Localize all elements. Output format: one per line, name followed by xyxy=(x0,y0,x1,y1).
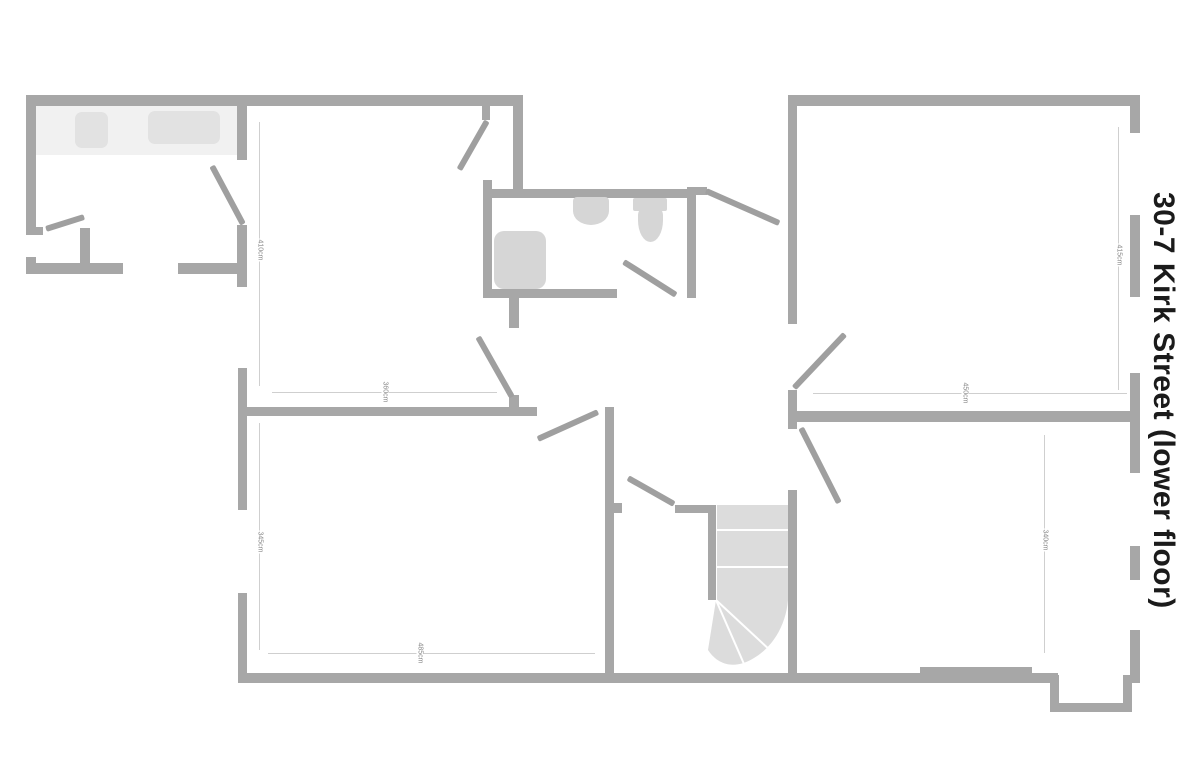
wall-bathroom-left xyxy=(483,180,492,298)
wall-right-seg1 xyxy=(1130,95,1140,133)
wall-tr-top xyxy=(790,95,1140,106)
wall-left-jamb xyxy=(26,227,43,235)
wall-tr-left-stub xyxy=(788,390,797,429)
dimension-label: 340cm xyxy=(1042,528,1049,551)
kitchen-appliance-left xyxy=(75,112,108,148)
door-swing-bathroom-inner xyxy=(622,259,678,297)
wall-right-seg2 xyxy=(1130,215,1140,297)
door-swing-bottom-left-room xyxy=(537,409,600,442)
door-swing-kitchen xyxy=(209,165,245,226)
wall-central-vertical xyxy=(513,98,523,197)
wall-top xyxy=(26,95,523,106)
wall-right-seg3 xyxy=(1130,373,1140,473)
wall-kitchen-right-lower xyxy=(237,225,247,287)
stair-tread-line xyxy=(717,566,788,568)
dimension-line xyxy=(268,653,595,654)
dimension-label: 345cm xyxy=(257,530,264,553)
dimension-line xyxy=(813,393,1127,394)
wall-br-top xyxy=(797,411,1140,422)
wall-bl-right xyxy=(605,407,614,673)
wall-kitchen-right-upper xyxy=(237,95,247,160)
dimension-label: 360cm xyxy=(382,380,389,403)
wall-doorway-jamb xyxy=(482,95,490,120)
wall-right-seg5 xyxy=(1130,630,1140,683)
wall-hall-below-bathroom xyxy=(509,297,519,328)
wall-mid-horizontal xyxy=(240,407,537,416)
wall-tr-left xyxy=(788,95,797,324)
wall-notch-bottom xyxy=(1050,703,1132,712)
sink xyxy=(573,197,609,225)
door-swing-top-right-room xyxy=(792,332,847,390)
door-swing-top-middle-room xyxy=(457,120,490,172)
dimension-label: 450cm xyxy=(962,381,969,404)
shower xyxy=(494,231,546,289)
kitchen-appliance-right xyxy=(148,111,220,144)
page-title: 30-7 Kirk Street (lower floor) xyxy=(1146,95,1180,705)
dimension-label: 415cm xyxy=(1116,243,1123,266)
dimension-label: 410cm xyxy=(257,238,264,261)
wall-bl-left-upper xyxy=(238,368,247,510)
wall-right-seg4 xyxy=(1130,546,1140,580)
floor-plan: 410cm 360cm 415cm 450cm 345cm 485cm 340c… xyxy=(0,0,1197,768)
staircase-straight-run xyxy=(717,505,788,600)
wall-stairhall-door-stub xyxy=(613,503,622,513)
wall-stair-left xyxy=(708,505,716,600)
window-bottom xyxy=(920,667,1032,683)
wall-left-upper xyxy=(26,95,36,235)
staircase-winder xyxy=(700,598,792,672)
toilet-bowl xyxy=(638,206,663,242)
wall-bathroom-bottom xyxy=(483,289,617,298)
wall-bathroom-right xyxy=(687,189,696,298)
door-swing-hall xyxy=(475,335,514,398)
stair-tread-line xyxy=(717,529,788,531)
wall-closet-stub xyxy=(80,228,90,263)
wall-bathroom-door-jamb xyxy=(687,187,707,195)
door-swing-stair-hall xyxy=(627,475,676,506)
wall-entry-bottom-left xyxy=(26,263,123,274)
door-swing-bottom-right-room xyxy=(798,427,841,505)
door-swing-bathroom-hall xyxy=(705,188,781,226)
dimension-label: 485cm xyxy=(417,641,424,664)
wall-bl-left-lower xyxy=(238,593,247,682)
